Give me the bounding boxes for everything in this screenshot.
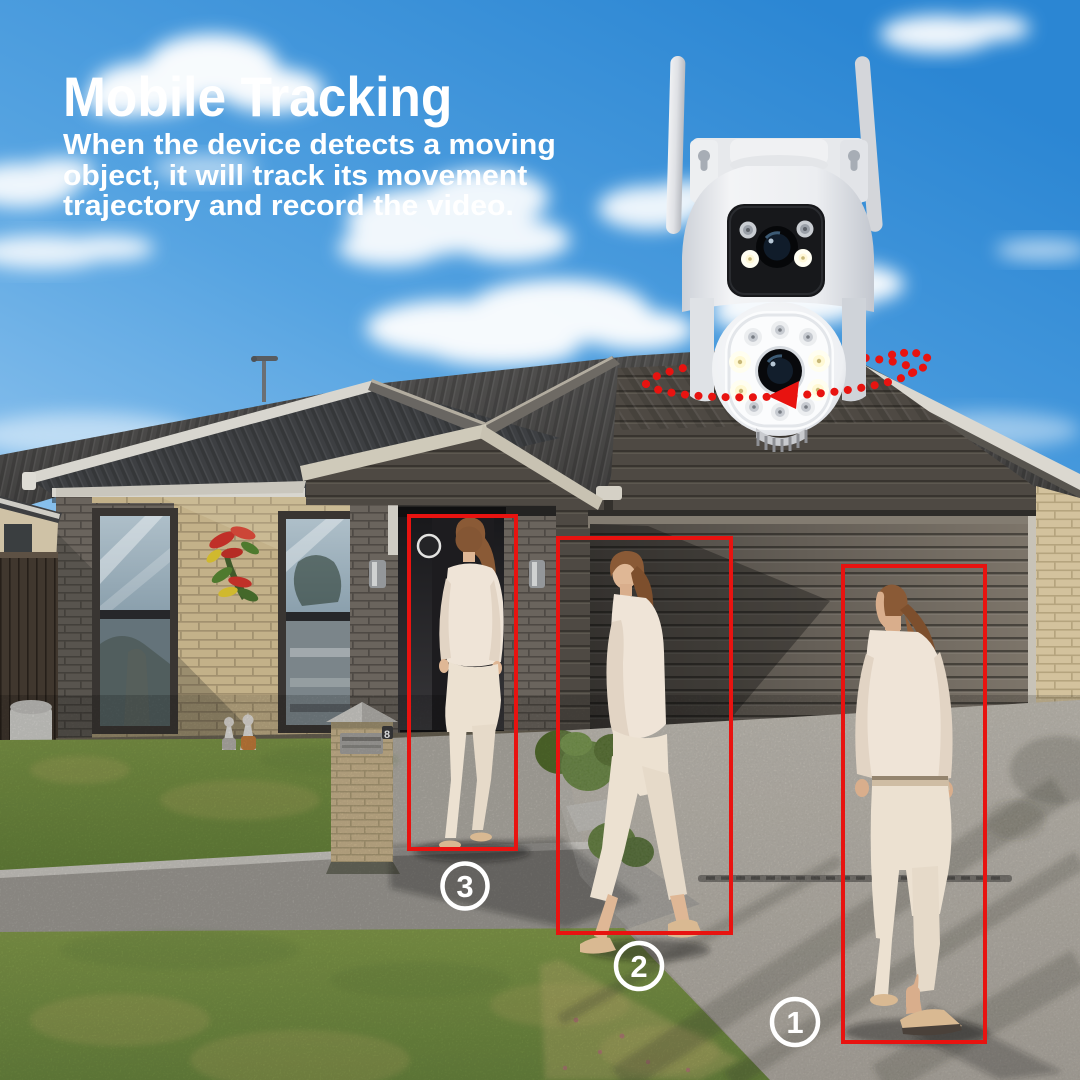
svg-text:2: 2 [630,949,647,984]
svg-text:1: 1 [786,1005,803,1040]
svg-text:3: 3 [456,869,473,904]
